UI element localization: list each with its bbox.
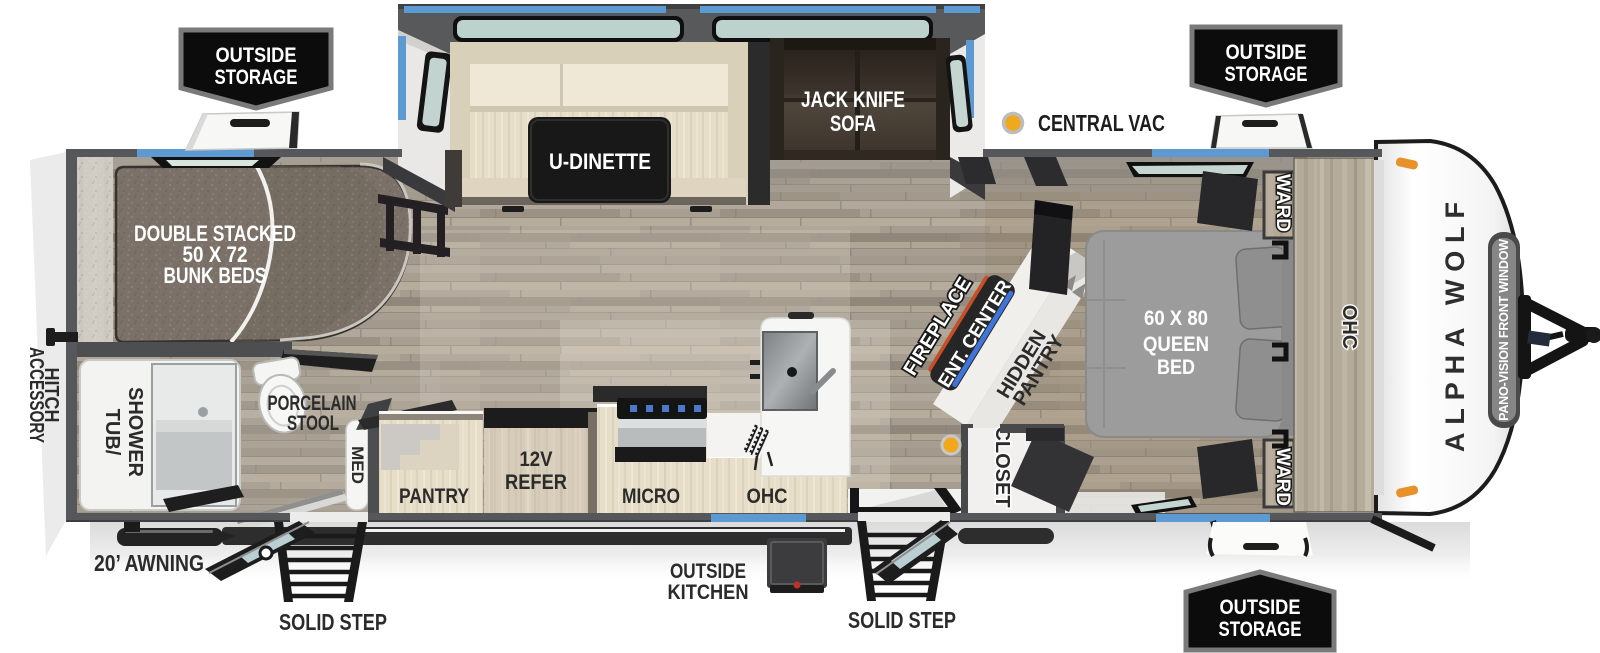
svg-text:MED: MED — [348, 446, 367, 484]
svg-text:BED: BED — [1157, 356, 1195, 379]
svg-text:WARD: WARD — [1272, 174, 1293, 232]
svg-text:OUTSIDE: OUTSIDE — [216, 44, 297, 67]
svg-text:STORAGE: STORAGE — [1219, 618, 1302, 641]
svg-text:REFER: REFER — [505, 471, 567, 494]
svg-text:JACK KNIFE: JACK KNIFE — [801, 87, 905, 112]
svg-text:STORAGE: STORAGE — [1225, 63, 1308, 86]
svg-text:SHOWER: SHOWER — [124, 387, 146, 478]
svg-text:OHC: OHC — [747, 485, 788, 508]
svg-text:U-DINETTE: U-DINETTE — [549, 149, 651, 174]
svg-text:CLOSET: CLOSET — [991, 426, 1013, 507]
svg-text:STOOL: STOOL — [287, 412, 339, 435]
svg-text:PANTRY: PANTRY — [399, 485, 469, 508]
svg-text:TUB/: TUB/ — [101, 409, 123, 456]
svg-text:WARD: WARD — [1272, 448, 1293, 506]
svg-text:12V: 12V — [520, 448, 553, 471]
svg-text:CENTRAL VAC: CENTRAL VAC — [1038, 110, 1165, 136]
svg-text:SOFA: SOFA — [830, 111, 876, 136]
svg-text:20’ AWNING: 20’ AWNING — [94, 550, 204, 576]
svg-text:OUTSIDE: OUTSIDE — [1220, 596, 1301, 619]
svg-text:OHC: OHC — [1338, 305, 1360, 349]
svg-text:PANO-VISION FRONT WINDOW: PANO-VISION FRONT WINDOW — [1497, 239, 1511, 421]
svg-text:OUTSIDE: OUTSIDE — [670, 560, 746, 583]
svg-text:HITCH: HITCH — [40, 368, 62, 423]
svg-text:SOLID STEP: SOLID STEP — [848, 607, 956, 633]
svg-text:60 X 80: 60 X 80 — [1144, 307, 1208, 330]
svg-text:STORAGE: STORAGE — [215, 66, 298, 89]
svg-text:BUNK BEDS: BUNK BEDS — [164, 263, 267, 288]
svg-text:OUTSIDE: OUTSIDE — [1226, 41, 1307, 64]
svg-text:MICRO: MICRO — [622, 485, 680, 508]
svg-text:KITCHEN: KITCHEN — [668, 581, 749, 604]
svg-text:QUEEN: QUEEN — [1143, 333, 1209, 356]
svg-text:SOLID STEP: SOLID STEP — [279, 609, 387, 635]
